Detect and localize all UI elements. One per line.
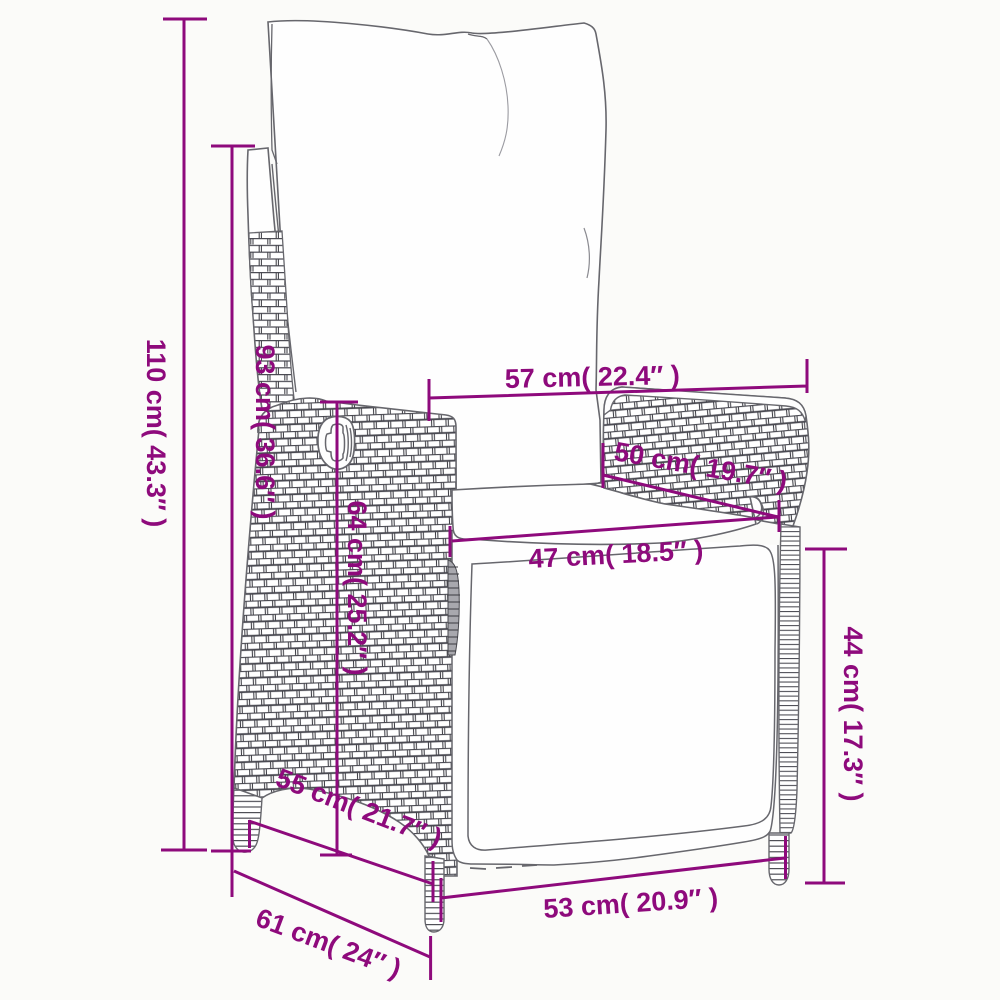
svg-text:110 cm( 43.3″ ): 110 cm( 43.3″ ) — [141, 339, 171, 528]
svg-text:57 cm( 22.4″ ): 57 cm( 22.4″ ) — [504, 360, 680, 394]
svg-text:44 cm( 17.3″ ): 44 cm( 17.3″ ) — [838, 626, 868, 801]
svg-text:93 cm( 36.6″ ): 93 cm( 36.6″ ) — [250, 344, 280, 519]
svg-text:64 cm( 25.2″ ): 64 cm( 25.2″ ) — [342, 500, 372, 675]
